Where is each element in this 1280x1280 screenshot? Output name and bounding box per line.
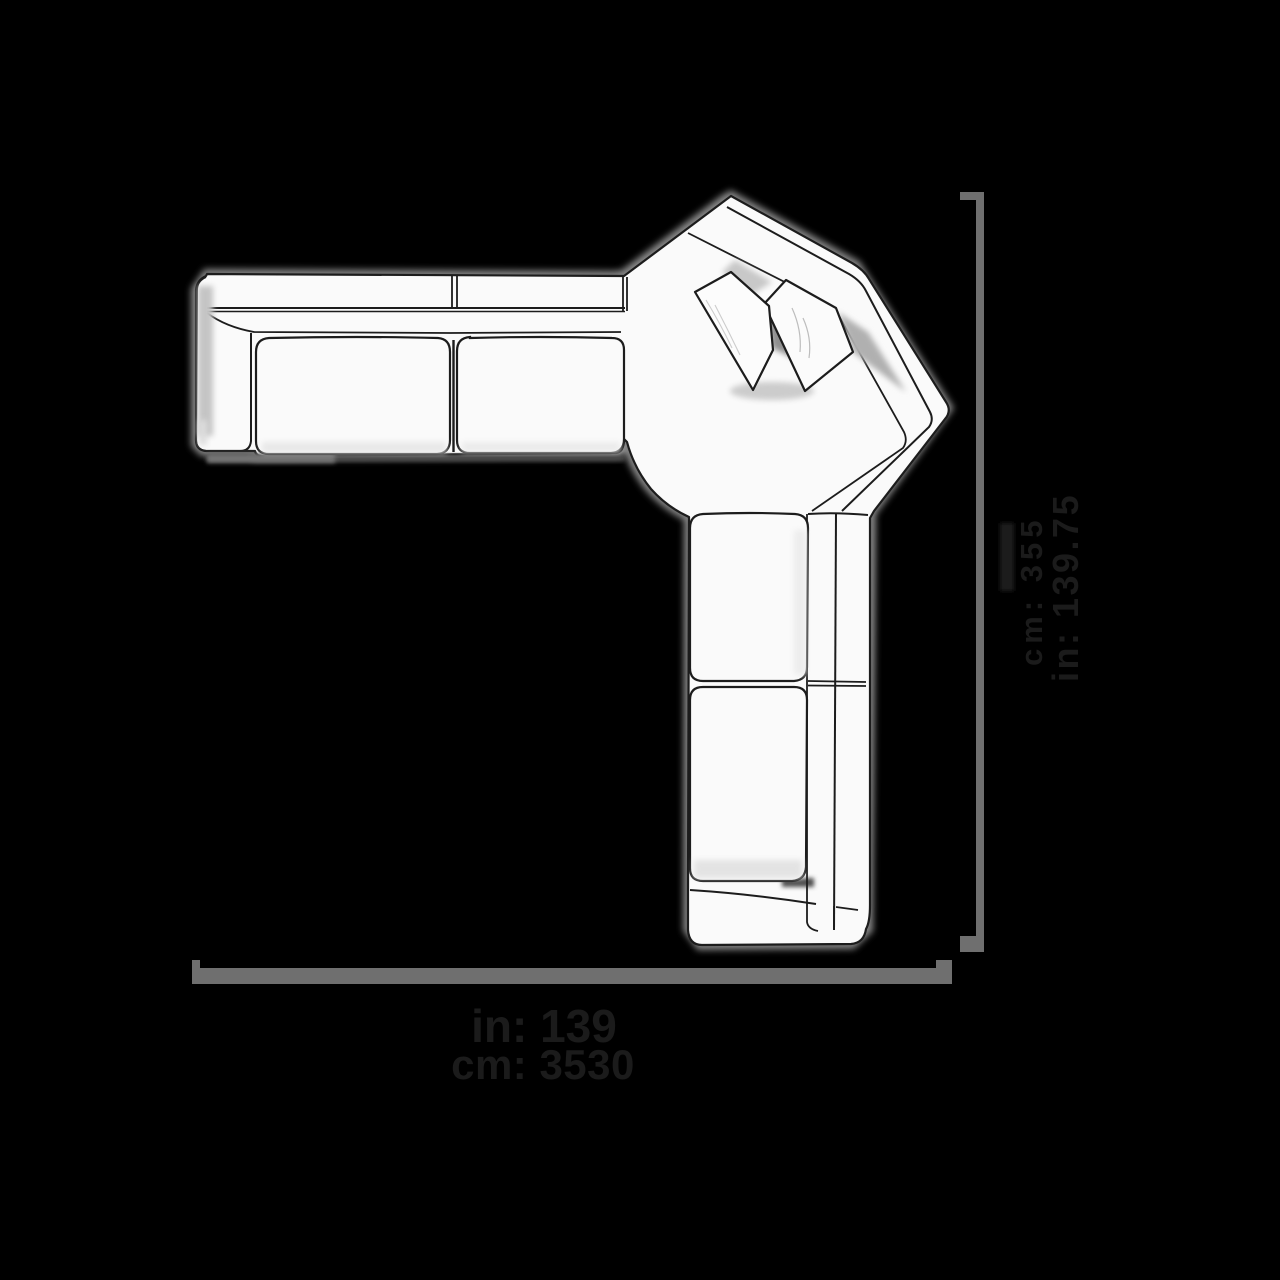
svg-text:in: 139.75: in: 139.75 <box>1045 493 1086 682</box>
svg-text:cm: 3530: cm: 3530 <box>451 1041 635 1088</box>
svg-text:cm: 355: cm: 355 <box>1014 516 1049 666</box>
